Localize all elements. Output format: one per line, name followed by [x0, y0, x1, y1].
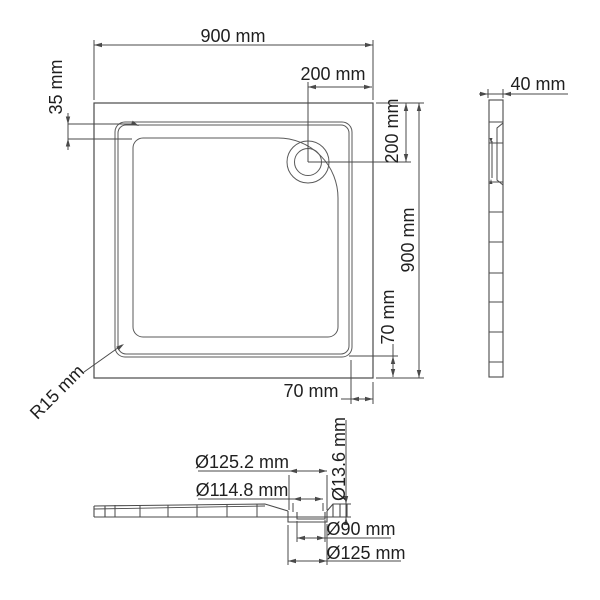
dim-label-drain-offset-x: 200 mm — [300, 65, 365, 83]
section-end-caps — [94, 506, 105, 517]
dim-114-8-lines — [198, 499, 323, 512]
dim-label-wall-top-offset: 35 mm — [47, 59, 65, 114]
tray-floor-edge — [133, 138, 338, 337]
dim-label-drain-top-inner-dia: Ø114.8 mm — [196, 481, 289, 499]
dim-r15-leader — [84, 345, 122, 372]
tray-rim-outer — [115, 122, 352, 357]
tray-rim-inner — [118, 125, 349, 354]
section-drain-flange — [333, 504, 347, 517]
dim-label-drain-offset-y: 200 mm — [383, 98, 401, 163]
dim-label-drain-top-outer-dia: Ø125.2 mm — [195, 453, 289, 471]
dim-label-overall-width: 900 mm — [200, 27, 265, 45]
dim-label-drain-hole-dia: Ø90 mm — [326, 520, 395, 538]
top-view-rim — [115, 122, 352, 357]
section-view — [94, 504, 351, 522]
section-inner-top-edge — [94, 506, 265, 509]
dim-label-floor-offset-right: 70 mm — [379, 289, 397, 344]
side-drain-bulge — [492, 123, 503, 185]
dim-label-side-width: 40 mm — [510, 75, 565, 93]
dim-label-drain-bottom-dia: Ø125 mm — [326, 544, 405, 562]
side-profile-segments — [489, 122, 503, 362]
dim-35-lines — [68, 113, 134, 150]
dim-label-overall-height: 900 mm — [399, 207, 417, 272]
dim-label-drain-height: Ø13.6 mm — [330, 417, 348, 501]
technical-drawing-canvas: 900 mm 35 mm 200 mm 200 mm 900 mm 70 mm … — [0, 0, 600, 600]
section-top-edge — [94, 504, 351, 511]
dim-label-floor-offset-bottom: 70 mm — [283, 382, 338, 400]
dim-200-right-lines — [308, 103, 424, 162]
